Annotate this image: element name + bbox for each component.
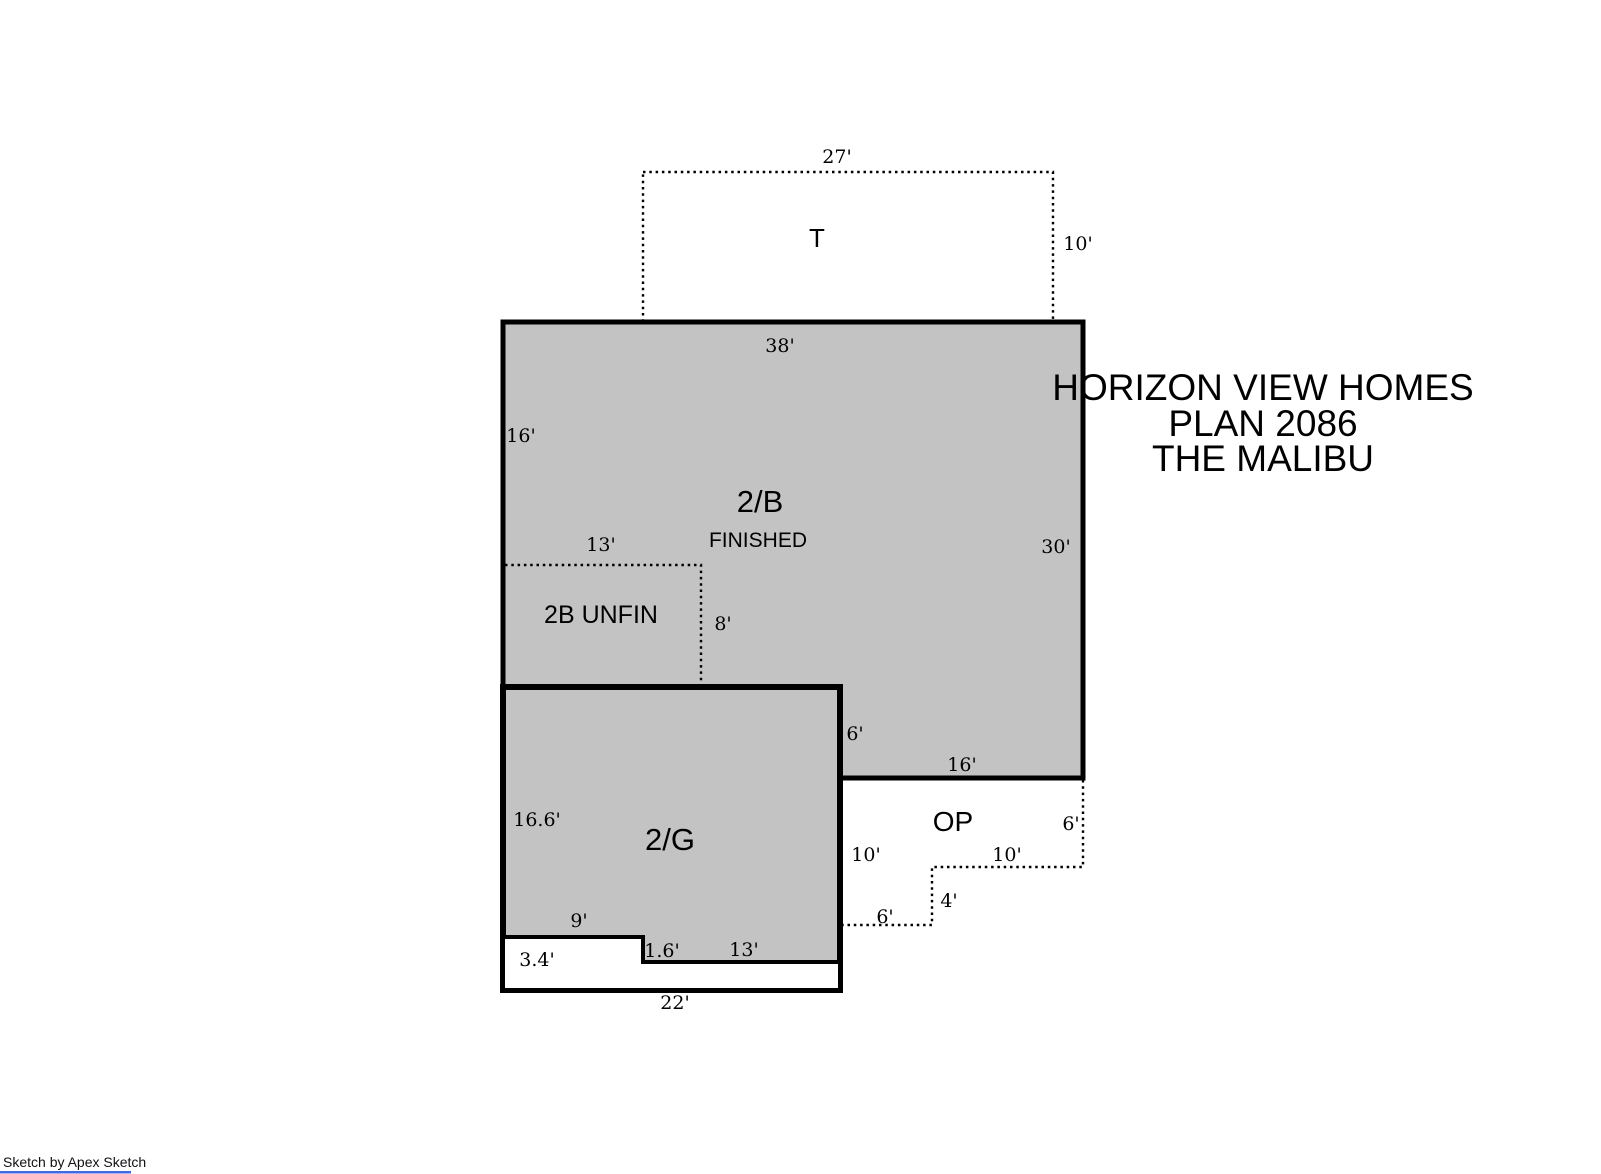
dim-2g-left: 16.6' xyxy=(513,809,561,831)
dim-2g-notch-step: 1.6' xyxy=(644,940,679,962)
dim-2b-top: 38' xyxy=(765,335,794,357)
dim-2g-bottom-inner: 13' xyxy=(729,939,758,961)
dim-2b-left: 16' xyxy=(506,425,535,447)
dim-op-mid: 10' xyxy=(992,844,1021,866)
dim-2b-bottom: 16' xyxy=(947,754,976,776)
label-area-op: OP xyxy=(933,806,973,837)
watermark-underline xyxy=(0,1171,131,1174)
dim-2g-bottom: 22' xyxy=(660,992,689,1014)
plan-title: HORIZON VIEW HOMES PLAN 2086 THE MALIBU xyxy=(1052,367,1473,479)
label-area-2g: 2/G xyxy=(645,822,695,857)
dim-2g-notch-left: 3.4' xyxy=(519,949,554,971)
floorplan-sketch: 27' 10' 38' 16' 30' 16' 6' 13' 8' 16.6' … xyxy=(0,0,1601,1174)
dim-unfin-top: 13' xyxy=(586,534,615,556)
dim-2b-right: 30' xyxy=(1041,536,1070,558)
area-t-outline xyxy=(643,172,1053,322)
dim-2g-notch-top: 9' xyxy=(570,910,587,932)
dim-2b-step: 6' xyxy=(846,723,863,745)
dim-t-top: 27' xyxy=(822,146,851,168)
label-area-t: T xyxy=(809,223,825,253)
dim-op-right: 6' xyxy=(1062,813,1079,835)
dim-op-left: 10' xyxy=(851,844,880,866)
dim-op-step-v: 4' xyxy=(940,890,957,912)
dim-unfin-right: 8' xyxy=(714,613,731,635)
label-area-2b: 2/B xyxy=(737,484,784,519)
floorplan-svg: 27' 10' 38' 16' 30' 16' 6' 13' 8' 16.6' … xyxy=(0,0,1601,1174)
plan-title-line3: THE MALIBU xyxy=(1152,438,1374,479)
dim-t-right: 10' xyxy=(1063,233,1092,255)
watermark-text: Sketch by Apex Sketch xyxy=(3,1154,146,1170)
dim-op-step-h: 6' xyxy=(876,906,893,928)
label-area-2b-finished: FINISHED xyxy=(709,529,807,552)
plan-title-line1: HORIZON VIEW HOMES xyxy=(1052,367,1473,408)
label-area-2b-unfin: 2B UNFIN xyxy=(544,601,658,629)
